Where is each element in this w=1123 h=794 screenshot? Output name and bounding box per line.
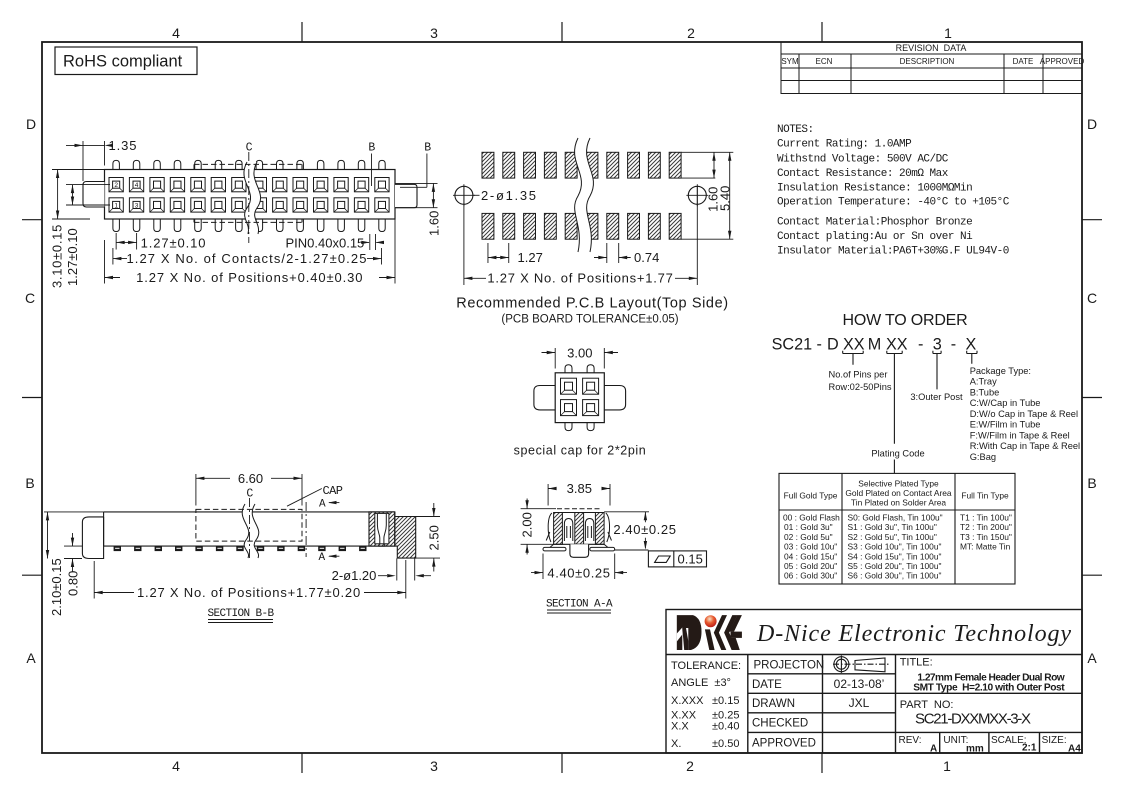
- svg-text:C: C: [1087, 290, 1097, 306]
- svg-text:PART NO:: PART NO:: [900, 699, 954, 711]
- svg-text:2: 2: [686, 758, 694, 774]
- svg-text:D-Nice Electronic Technology: D-Nice Electronic Technology: [756, 621, 1071, 647]
- svg-text:S6 : Gold 30u", Tin 100u": S6 : Gold 30u", Tin 100u": [848, 571, 942, 581]
- svg-text:XX: XX: [886, 336, 908, 354]
- svg-text:2.10±0.15: 2.10±0.15: [49, 558, 64, 616]
- svg-text:2-ø1.20: 2-ø1.20: [332, 568, 377, 583]
- svg-text:1: 1: [943, 758, 951, 774]
- svg-text:-: -: [951, 336, 956, 354]
- svg-text:3: 3: [933, 336, 942, 354]
- svg-text:±0.15: ±0.15: [712, 695, 739, 707]
- svg-text:B: B: [368, 142, 375, 155]
- svg-text:SYM: SYM: [781, 57, 799, 66]
- svg-text:0.74: 0.74: [634, 250, 659, 265]
- svg-text:APPROVED: APPROVED: [752, 738, 816, 750]
- svg-text:3: 3: [430, 25, 438, 41]
- svg-text:Selective Plated Type: Selective Plated Type: [858, 479, 939, 489]
- svg-text:RoHS compliant: RoHS compliant: [63, 53, 183, 71]
- svg-text:1.27 X No. of Positions+0.40±0: 1.27 X No. of Positions+0.40±0.30: [136, 270, 363, 285]
- svg-text:A4: A4: [1068, 744, 1081, 755]
- svg-text:S4 : Gold 15u", Tin 100u": S4 : Gold 15u", Tin 100u": [848, 551, 942, 561]
- svg-text:A: A: [319, 499, 326, 511]
- svg-text:(PCB BOARD TOLERANCE±0.05): (PCB BOARD TOLERANCE±0.05): [501, 314, 678, 326]
- svg-text:SIZE:: SIZE:: [1042, 735, 1067, 746]
- svg-text:X.XXX: X.XXX: [671, 695, 704, 707]
- svg-text:NOTES:: NOTES:: [777, 124, 814, 136]
- svg-text:6.60: 6.60: [238, 471, 263, 486]
- svg-text:S3 : Gold 10u", Tin 100u": S3 : Gold 10u", Tin 100u": [848, 542, 942, 552]
- svg-text:Current Rating: 1.0AMP: Current Rating: 1.0AMP: [777, 138, 912, 150]
- svg-text:T3 : Tin 150u": T3 : Tin 150u": [960, 532, 1012, 542]
- svg-text:±0.40: ±0.40: [712, 721, 739, 733]
- svg-text:02 : Gold 5u": 02 : Gold 5u": [784, 532, 833, 542]
- svg-text:No.of Pins per: No.of Pins per: [829, 370, 888, 380]
- svg-text:JXL: JXL: [849, 696, 870, 710]
- svg-text:D:W/o Cap in Tape & Reel: D:W/o Cap in Tape & Reel: [970, 409, 1078, 419]
- svg-text:TITLE:: TITLE:: [900, 657, 933, 669]
- svg-text:Operation Temperature: -40°C t: Operation Temperature: -40°C to +105°C: [777, 196, 1010, 208]
- svg-text:Insulator Material:PA6T+30%G.F: Insulator Material:PA6T+30%G.F UL94V-0: [777, 245, 1009, 257]
- svg-text:B: B: [1087, 475, 1096, 491]
- svg-text:Tin Plated on Solder Area: Tin Plated on Solder Area: [851, 498, 946, 508]
- svg-text:Contact Resistance: 20mΩ Max: Contact Resistance: 20mΩ Max: [777, 168, 949, 180]
- svg-text:3:Outer Post: 3:Outer Post: [910, 392, 963, 402]
- svg-text:±0.50: ±0.50: [712, 738, 739, 750]
- svg-text:Package Type:: Package Type:: [970, 366, 1031, 376]
- svg-text:1.35: 1.35: [109, 138, 138, 153]
- svg-text:A: A: [1087, 650, 1097, 666]
- svg-text:D: D: [1087, 116, 1097, 132]
- svg-text:R:With Cap in Tape & Reel: R:With Cap in Tape & Reel: [970, 441, 1080, 451]
- svg-text:S0: Gold Flash, Tin 100u": S0: Gold Flash, Tin 100u": [848, 513, 943, 523]
- svg-text:CAP: CAP: [323, 484, 343, 498]
- svg-text:2.50: 2.50: [427, 525, 442, 550]
- svg-text:F:W/Film in Tape & Reel: F:W/Film in Tape & Reel: [970, 430, 1070, 440]
- svg-text:M: M: [868, 336, 881, 354]
- svg-text:04 : Gold 15u": 04 : Gold 15u": [784, 551, 837, 561]
- svg-text:G:Bag: G:Bag: [970, 452, 996, 462]
- svg-text:PIN0.40x0.15: PIN0.40x0.15: [286, 235, 365, 250]
- svg-text:02-13-08’: 02-13-08’: [834, 677, 885, 691]
- svg-text:5.40: 5.40: [717, 186, 732, 211]
- svg-text:06 : Gold 30u": 06 : Gold 30u": [784, 571, 837, 581]
- svg-text:1.27±0.10: 1.27±0.10: [65, 228, 80, 286]
- svg-text:1.60: 1.60: [427, 211, 442, 236]
- svg-text:1.27: 1.27: [518, 250, 543, 265]
- svg-text:D: D: [827, 336, 839, 354]
- svg-text:E:W/Film in Tube: E:W/Film in Tube: [970, 420, 1041, 430]
- svg-text:Gold Plated on Contact Area: Gold Plated on Contact Area: [845, 488, 951, 498]
- svg-text:REV:: REV:: [899, 735, 922, 746]
- svg-text:T2 : Tin 200u": T2 : Tin 200u": [960, 522, 1012, 532]
- svg-text:Contact plating:Au or Sn over: Contact plating:Au or Sn over Ni: [777, 231, 973, 243]
- svg-text:Full Gold Type: Full Gold Type: [784, 491, 838, 501]
- svg-text:TOLERANCE:: TOLERANCE:: [671, 660, 741, 672]
- svg-text:special cap for 2*2pin: special cap for 2*2pin: [514, 444, 647, 458]
- svg-text:C: C: [25, 290, 35, 306]
- svg-text:DESCRIPTION: DESCRIPTION: [900, 57, 955, 66]
- svg-text:1.27 X No. of Positions+1.77: 1.27 X No. of Positions+1.77: [487, 271, 673, 286]
- svg-text:-: -: [817, 336, 822, 354]
- svg-text:3.10±0.15: 3.10±0.15: [50, 224, 65, 288]
- svg-text:SECTION A-A: SECTION A-A: [546, 599, 613, 611]
- svg-text:SC21: SC21: [772, 336, 813, 354]
- svg-text:S2 : Gold 5u", Tin 100u": S2 : Gold 5u", Tin 100u": [848, 532, 937, 542]
- svg-text:HOW TO ORDER: HOW TO ORDER: [842, 312, 967, 329]
- svg-text:B: B: [424, 142, 431, 155]
- svg-text:Plating Code: Plating Code: [871, 449, 924, 459]
- svg-text:0.80: 0.80: [66, 571, 81, 596]
- svg-text:ANGLE ±3°: ANGLE ±3°: [671, 677, 731, 689]
- svg-text:REVISION DATA: REVISION DATA: [896, 43, 967, 53]
- svg-text:MT: Matte Tin: MT: Matte Tin: [960, 542, 1011, 552]
- svg-text:CHECKED: CHECKED: [752, 718, 808, 730]
- svg-text:A: A: [26, 650, 36, 666]
- svg-text:DATE: DATE: [1013, 57, 1034, 66]
- svg-text:SC21-DXXMXX-3-X: SC21-DXXMXX-3-X: [915, 711, 1031, 728]
- svg-text:4: 4: [135, 182, 139, 189]
- svg-text:Full Tin Type: Full Tin Type: [961, 491, 1009, 501]
- svg-text:Contact Material:Phosphor Bron: Contact Material:Phosphor Bronze: [777, 216, 972, 228]
- svg-text:4: 4: [172, 758, 180, 774]
- svg-text:DATE: DATE: [752, 679, 782, 691]
- svg-text:SECTION B-B: SECTION B-B: [207, 608, 274, 620]
- svg-text:3: 3: [430, 758, 438, 774]
- svg-text:PROJECTON: PROJECTON: [754, 660, 825, 672]
- svg-text:1: 1: [944, 25, 952, 41]
- svg-text:XX: XX: [843, 336, 865, 354]
- svg-text:1: 1: [114, 202, 118, 209]
- svg-text:00 : Gold Flash: 00 : Gold Flash: [783, 513, 840, 523]
- svg-text:4: 4: [172, 25, 180, 41]
- svg-text:A:Tray: A:Tray: [970, 377, 997, 387]
- svg-text:mm: mm: [966, 744, 984, 755]
- svg-text:05 : Gold 20u": 05 : Gold 20u": [784, 561, 837, 571]
- svg-text:Insulation Resistance: 1000MΩM: Insulation Resistance: 1000MΩMin: [777, 182, 972, 194]
- svg-text:D: D: [26, 116, 36, 132]
- svg-text:S1 : Gold 3u", Tin 100u": S1 : Gold 3u", Tin 100u": [848, 522, 937, 532]
- svg-text:3.00: 3.00: [567, 345, 592, 360]
- svg-text:-: -: [918, 336, 923, 354]
- svg-text:2: 2: [687, 25, 695, 41]
- svg-text:UNIT:: UNIT:: [943, 735, 968, 746]
- svg-text:C:W/Cap in Tube: C:W/Cap in Tube: [970, 398, 1041, 408]
- svg-text:Withstnd Voltage: 500V AC/DC: Withstnd Voltage: 500V AC/DC: [777, 154, 949, 166]
- svg-text:2:1: 2:1: [1022, 743, 1037, 754]
- svg-text:1.27 X No. of Positions+1.77±0: 1.27 X No. of Positions+1.77±0.20: [137, 585, 361, 600]
- svg-text:DRAWN: DRAWN: [752, 698, 795, 710]
- svg-text:B:Tube: B:Tube: [970, 387, 1000, 397]
- svg-text:0.15: 0.15: [678, 552, 703, 567]
- svg-text:1.27±0.10: 1.27±0.10: [141, 235, 207, 250]
- svg-text:Row:02-50Pins: Row:02-50Pins: [829, 382, 892, 392]
- svg-text:B: B: [25, 475, 34, 491]
- svg-text:2.40±0.25: 2.40±0.25: [613, 522, 676, 537]
- svg-text:Recommended P.C.B Layout(Top S: Recommended P.C.B Layout(Top Side): [456, 296, 728, 312]
- svg-text:X.X: X.X: [671, 721, 689, 733]
- svg-text:X.: X.: [671, 738, 681, 750]
- svg-text:01 : Gold 3u": 01 : Gold 3u": [784, 522, 833, 532]
- svg-text:A: A: [930, 744, 937, 755]
- svg-text:A: A: [319, 552, 326, 564]
- svg-text:4.40±0.25: 4.40±0.25: [547, 565, 610, 580]
- svg-text:APPROVED: APPROVED: [1040, 57, 1085, 66]
- svg-text:SMT Type H=2.10 with Outer Po: SMT Type H=2.10 with Outer Post: [913, 683, 1065, 694]
- svg-text:2.00: 2.00: [520, 512, 535, 537]
- svg-text:ECN: ECN: [816, 57, 833, 66]
- svg-text:1.27 X No. of Contacts/2-1.27±: 1.27 X No. of Contacts/2-1.27±0.25: [126, 251, 367, 266]
- svg-text:3: 3: [135, 202, 139, 209]
- svg-text:2-ø1.35: 2-ø1.35: [481, 188, 538, 203]
- svg-text:3.85: 3.85: [567, 481, 592, 496]
- svg-text:S5 : Gold 20u", Tin 100u": S5 : Gold 20u", Tin 100u": [848, 561, 942, 571]
- svg-text:2: 2: [114, 182, 118, 189]
- svg-text:T1 : Tin 100u": T1 : Tin 100u": [960, 513, 1012, 523]
- svg-text:03 : Gold 10u": 03 : Gold 10u": [784, 542, 837, 552]
